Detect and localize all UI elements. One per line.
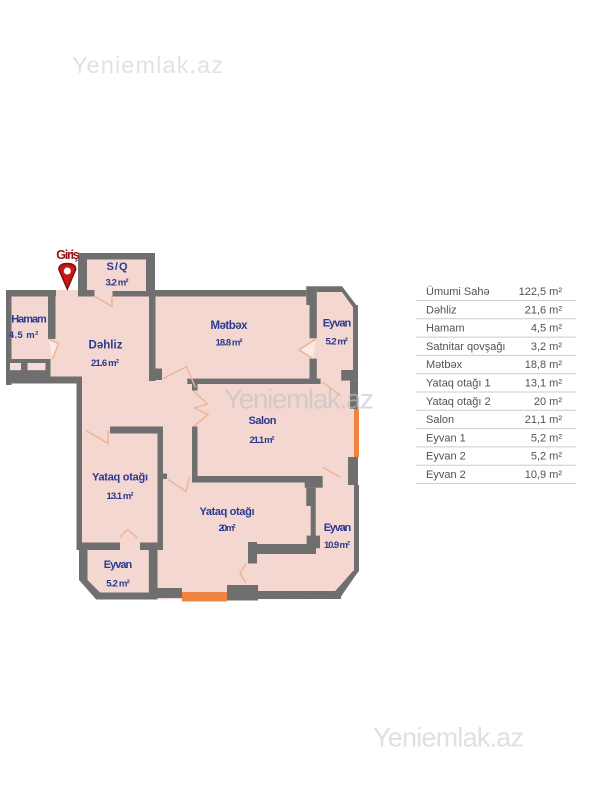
svg-text:Hamam: Hamam [11, 314, 47, 326]
svg-text:3.2 m²: 3.2 m² [106, 278, 129, 289]
svg-text:5,2 m²: 5,2 m² [531, 451, 563, 463]
svg-text:Eyvan: Eyvan [324, 522, 352, 534]
svg-text:Yataq otağı 2: Yataq otağı 2 [426, 396, 491, 408]
svg-text:18.8 m²: 18.8 m² [216, 338, 243, 349]
svg-text:Yataq otağı 1: Yataq otağı 1 [426, 378, 491, 390]
svg-text:Dəhliz: Dəhliz [426, 304, 457, 316]
svg-text:Hamam: Hamam [426, 323, 465, 335]
svg-text:4.5 m²: 4.5 m² [9, 330, 39, 341]
svg-text:Eyvan 2: Eyvan 2 [426, 469, 466, 481]
svg-text:Eyvan: Eyvan [104, 559, 133, 571]
svg-text:13.1 m²: 13.1 m² [107, 491, 134, 502]
svg-text:13,1 m²: 13,1 m² [525, 378, 563, 390]
svg-text:21.6 m²: 21.6 m² [91, 358, 119, 369]
svg-text:Eyvan: Eyvan [323, 318, 352, 330]
svg-text:Eyvan 2: Eyvan 2 [426, 451, 466, 463]
svg-text:10,9 m²: 10,9 m² [525, 469, 563, 481]
svg-text:3,2 m²: 3,2 m² [531, 341, 563, 353]
svg-text:Satnitar qovşağı: Satnitar qovşağı [426, 341, 506, 353]
svg-text:21,6 m²: 21,6 m² [525, 304, 563, 316]
svg-text:21.1 m²: 21.1 m² [250, 435, 275, 446]
svg-text:Yeniemlak.az: Yeniemlak.az [224, 384, 374, 415]
svg-text:20 m²: 20 m² [534, 396, 562, 408]
svg-text:Ümumi Sahə: Ümumi Sahə [426, 286, 490, 298]
svg-text:Eyvan 1: Eyvan 1 [426, 432, 466, 444]
svg-text:Salon: Salon [426, 414, 454, 426]
svg-text:Yataq otağı: Yataq otağı [200, 506, 255, 518]
svg-text:21,1 m²: 21,1 m² [525, 414, 563, 426]
svg-text:Mətbəx: Mətbəx [426, 359, 463, 371]
svg-text:4,5 m²: 4,5 m² [531, 323, 563, 335]
svg-text:18,8 m²: 18,8 m² [525, 359, 563, 371]
svg-text:20 m²: 20 m² [219, 523, 236, 534]
svg-text:Yataq otağı: Yataq otağı [92, 472, 148, 484]
svg-text:Giriş: Giriş [56, 248, 80, 262]
svg-text:5,2 m²: 5,2 m² [531, 432, 563, 444]
svg-text:5.2 m²: 5.2 m² [106, 579, 130, 590]
svg-text:10.9 m²: 10.9 m² [324, 540, 350, 551]
svg-text:5.2 m²: 5.2 m² [325, 337, 348, 348]
svg-text:122,5 m²: 122,5 m² [519, 286, 563, 298]
svg-text:Dəhliz: Dəhliz [89, 340, 123, 352]
svg-text:S/Q: S/Q [107, 261, 128, 273]
svg-text:Yeniemlak.az: Yeniemlak.az [72, 52, 223, 78]
svg-text:Yeniemlak.az: Yeniemlak.az [373, 723, 524, 753]
svg-text:Salon: Salon [249, 415, 277, 427]
svg-text:Mətbəx: Mətbəx [211, 320, 249, 332]
